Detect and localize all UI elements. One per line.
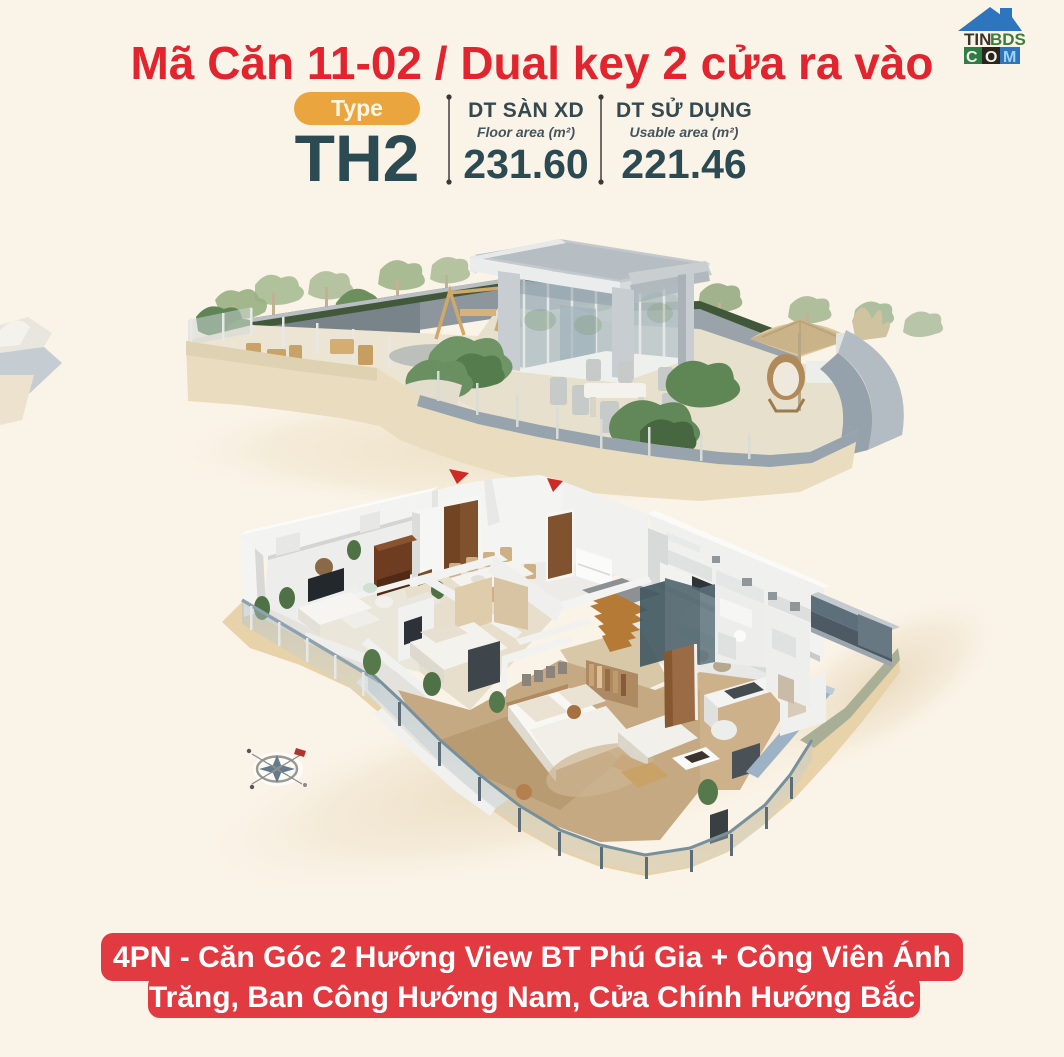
svg-text:C: C [966,49,978,65]
svg-text:BDS: BDS [990,30,1026,49]
svg-text:O: O [985,49,997,65]
svg-text:M: M [1003,49,1016,65]
svg-text:TIN: TIN [964,30,991,49]
